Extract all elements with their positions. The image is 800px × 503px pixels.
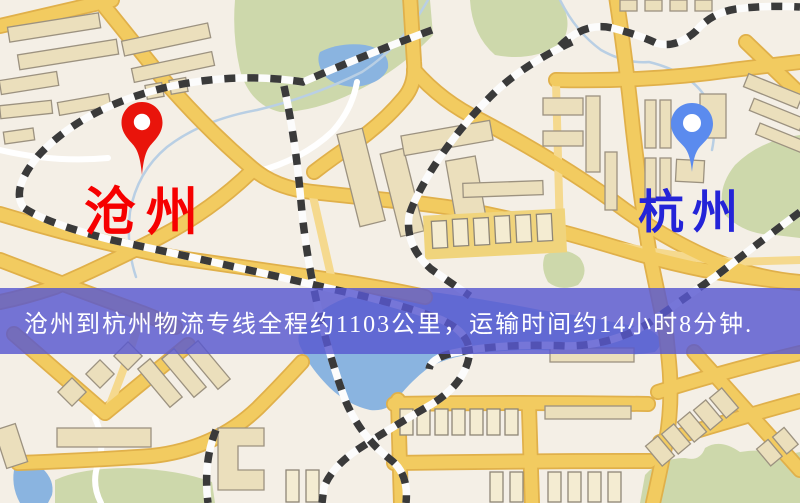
origin-pin-icon[interactable] bbox=[120, 101, 164, 177]
map-screenshot: 沧州 杭州 沧州到杭州物流专线全程约1103公里，运输时间约14小时8分钟. bbox=[0, 0, 800, 503]
destination-pin-icon[interactable] bbox=[669, 102, 715, 174]
route-info-banner: 沧州到杭州物流专线全程约1103公里，运输时间约14小时8分钟. bbox=[0, 288, 800, 354]
map-canvas[interactable] bbox=[0, 0, 800, 503]
route-info-text: 沧州到杭州物流专线全程约1103公里，运输时间约14小时8分钟. bbox=[0, 304, 753, 339]
destination-city-label: 杭州 bbox=[638, 176, 746, 242]
origin-city-label: 沧州 bbox=[84, 170, 208, 245]
